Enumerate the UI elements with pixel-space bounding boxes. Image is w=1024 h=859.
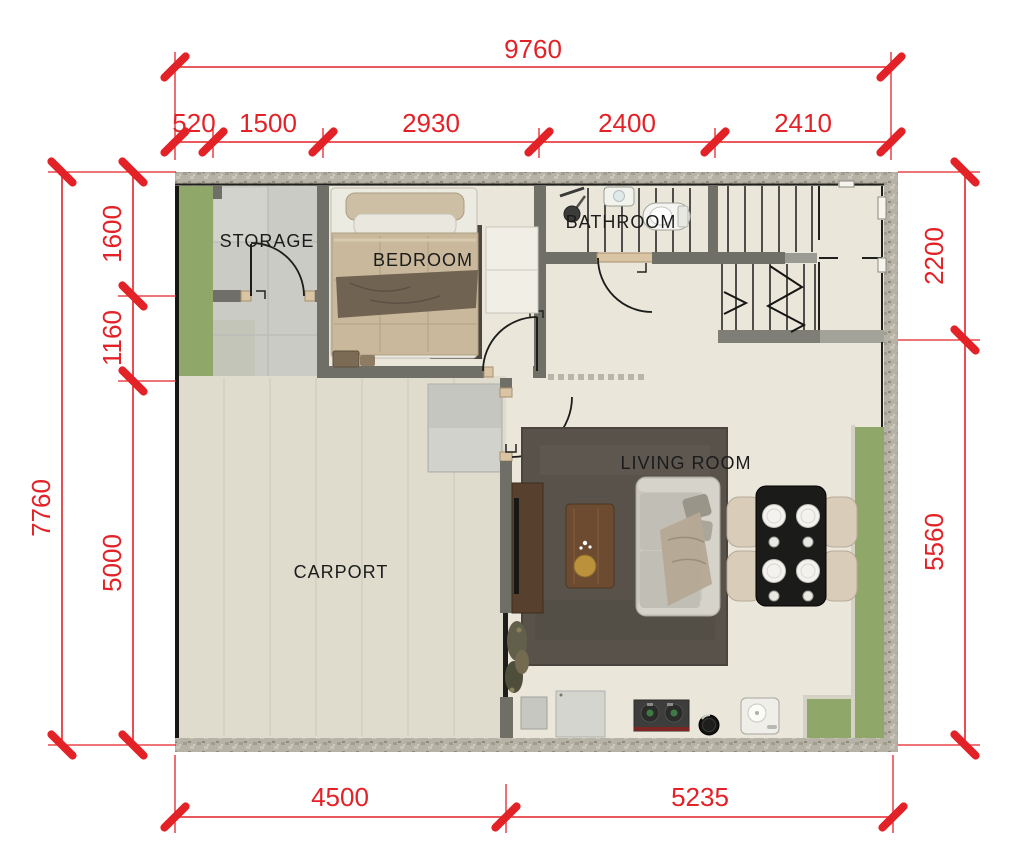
dim-left-seg: 1160 xyxy=(97,310,127,366)
dining-set xyxy=(727,486,857,606)
storage-floor xyxy=(213,186,322,376)
dimensions-left: 7760 1600 1160 5000 xyxy=(26,156,176,762)
cup xyxy=(803,537,813,547)
dim-bottom-seg: 4500 xyxy=(311,782,369,812)
dim-top-seg: 2930 xyxy=(402,108,460,138)
plate xyxy=(763,560,786,583)
plate xyxy=(763,505,786,528)
garden-bottom-right xyxy=(805,697,884,738)
plate xyxy=(797,505,820,528)
dim-top-seg: 2400 xyxy=(598,108,656,138)
sofa xyxy=(636,477,720,616)
garden-curb xyxy=(803,695,807,738)
garden-left xyxy=(179,186,213,376)
dim-top-seg: 1500 xyxy=(239,108,297,138)
kitchen-sink-icon xyxy=(741,698,779,734)
garden-right xyxy=(855,427,884,737)
carport-floor xyxy=(179,376,506,738)
pillow xyxy=(354,214,456,235)
floor-plan-page: STORAGE BEDROOM BATHROOM LIVING ROOM CAR… xyxy=(0,0,1024,859)
dim-top-total: 9760 xyxy=(504,34,562,64)
room-label-bathroom: BATHROOM xyxy=(566,212,677,232)
dining-table xyxy=(756,486,826,606)
bed xyxy=(331,188,478,367)
wardrobe xyxy=(486,227,538,313)
dimensions-bottom: 4500 5235 xyxy=(159,755,910,833)
coffee-table xyxy=(566,504,614,588)
room-label-living-room: LIVING ROOM xyxy=(620,453,751,473)
dim-left-total: 7760 xyxy=(26,479,56,537)
room-label-carport: CARPORT xyxy=(294,562,389,582)
dimensions-right: 2200 5560 xyxy=(898,156,981,762)
dim-right-seg: 2200 xyxy=(919,227,949,285)
room-label-storage: STORAGE xyxy=(220,231,315,251)
cup xyxy=(769,537,779,547)
dimensions-top: 9760 520 1500 2930 2400 2410 xyxy=(159,34,908,160)
fridge xyxy=(521,697,547,729)
dim-bottom-seg: 5235 xyxy=(671,782,729,812)
dim-left-seg: 5000 xyxy=(97,534,127,592)
cooktop-icon xyxy=(634,700,689,731)
kitchen-counter xyxy=(556,691,605,737)
sink-icon xyxy=(604,187,634,206)
cup xyxy=(769,591,779,601)
dim-left-seg: 1600 xyxy=(97,205,127,263)
window xyxy=(878,197,886,219)
plate xyxy=(797,560,820,583)
tv-console xyxy=(512,483,543,613)
floor-plan-canvas: STORAGE BEDROOM BATHROOM LIVING ROOM CAR… xyxy=(0,0,1024,859)
garden-curb xyxy=(803,695,855,699)
wall-bottom xyxy=(175,738,898,752)
trash-bin-icon xyxy=(699,715,719,735)
window xyxy=(878,258,886,272)
dim-top-seg: 2410 xyxy=(774,108,832,138)
dim-top-seg: 520 xyxy=(172,108,215,138)
cup xyxy=(803,591,813,601)
plan: STORAGE BEDROOM BATHROOM LIVING ROOM CAR… xyxy=(175,172,898,752)
left-boundary xyxy=(175,186,179,738)
room-label-bedroom: BEDROOM xyxy=(373,250,473,270)
dim-right-seg: 5560 xyxy=(919,513,949,571)
